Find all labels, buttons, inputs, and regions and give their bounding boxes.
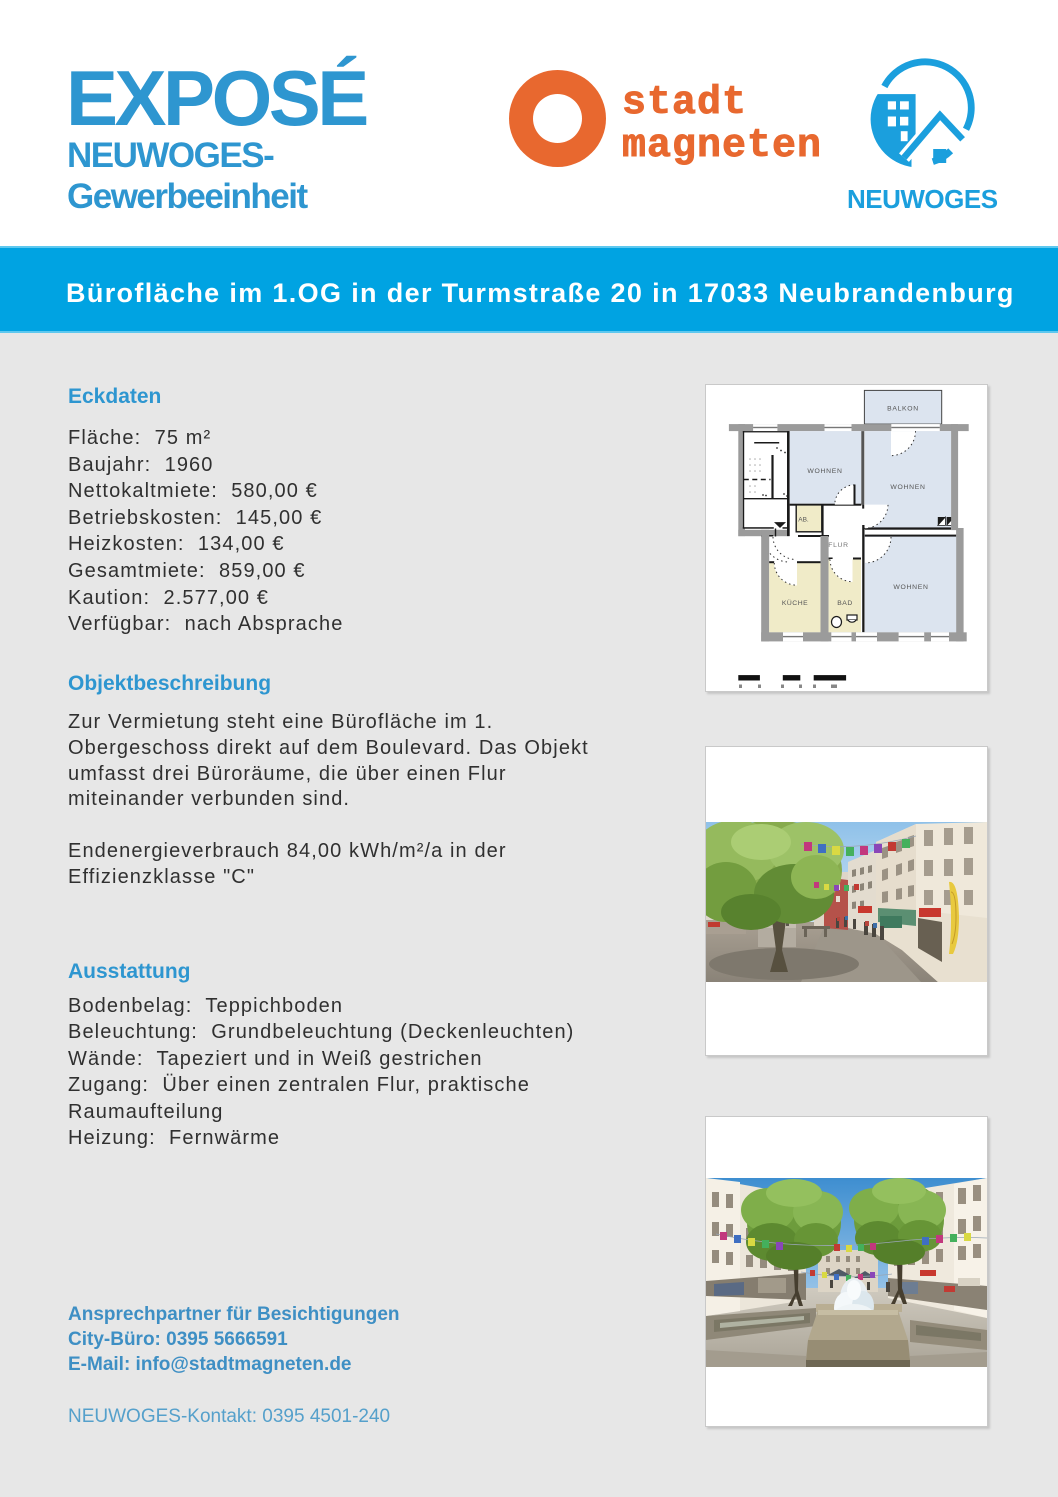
- svg-text:FLUR: FLUR: [828, 542, 849, 549]
- svg-text:WOHNEN: WOHNEN: [807, 468, 842, 475]
- svg-text:WOHNEN: WOHNEN: [890, 484, 925, 491]
- svg-text:AB.: AB.: [798, 517, 809, 524]
- svg-text:BALKON: BALKON: [887, 406, 919, 413]
- svg-text:BAD: BAD: [837, 600, 852, 607]
- svg-text:WOHNEN: WOHNEN: [893, 584, 928, 591]
- svg-text:KÜCHE: KÜCHE: [782, 599, 808, 607]
